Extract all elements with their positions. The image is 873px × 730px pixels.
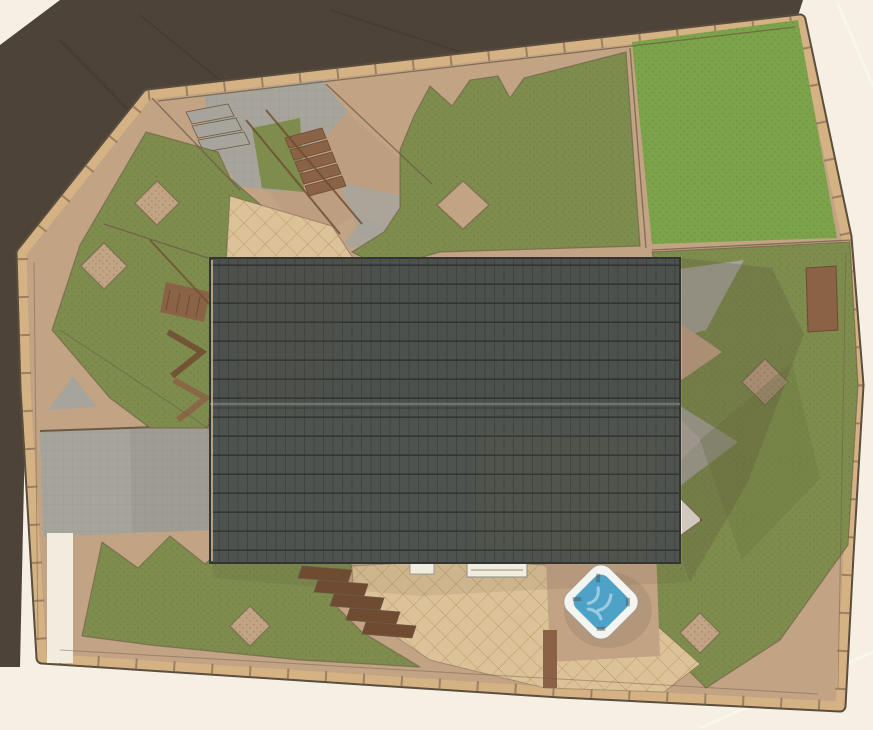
planter-bottom — [543, 630, 557, 688]
roof-stain — [470, 430, 660, 556]
white-path-left — [47, 533, 73, 663]
house-roof — [210, 258, 680, 563]
concrete-pad-shade — [130, 426, 215, 532]
site-plan-rendering — [0, 0, 873, 730]
site-plan-canvas — [0, 0, 873, 730]
planter-right — [806, 266, 838, 332]
